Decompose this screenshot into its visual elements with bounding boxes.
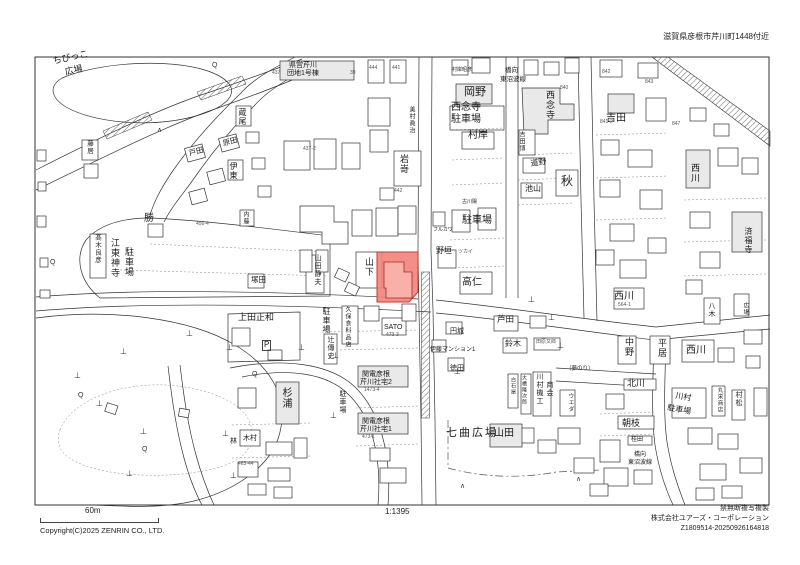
rights-note: 禁無断複写複製 [651, 504, 769, 514]
scale-bar-label: 60m [85, 506, 101, 515]
publisher-name: 株式会社ユアーズ・コーポレーション [651, 514, 769, 524]
address-note: 滋賀県彦根市芹川町1448付近 [663, 31, 769, 42]
scale-ratio: 1:1395 [385, 507, 409, 516]
map-serial: Z1809514-20250926164818 [651, 524, 769, 534]
copyright-notice: Copyright(C)2025 ZENRIN CO., LTD. [40, 526, 164, 535]
publisher-block: 禁無断複写複製 株式会社ユアーズ・コーポレーション Z1809514-20250… [651, 504, 769, 534]
highlight-group [377, 252, 418, 302]
map-drawing [0, 0, 800, 565]
scale-bar [40, 518, 159, 523]
map-canvas[interactable]: ちびっこ広場県営芹川団地1号棟43739444441437-2美村眞治岩嵜442… [0, 0, 800, 565]
